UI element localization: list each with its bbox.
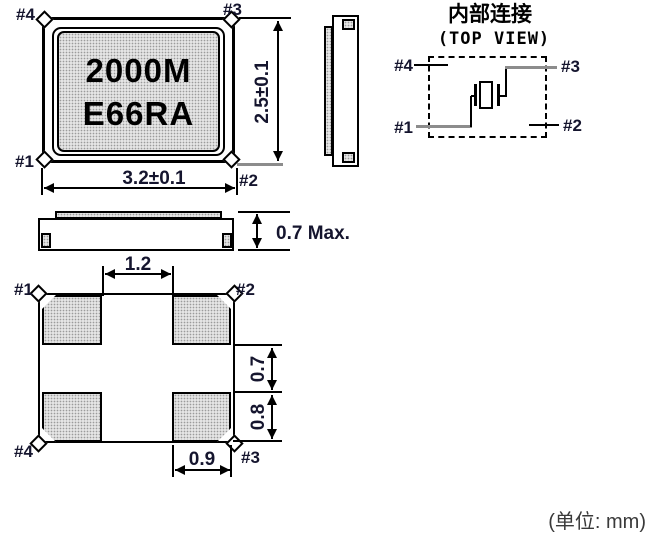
internal-connection-subtitle: (TOP VIEW) bbox=[415, 29, 573, 49]
top-view-pin2-label: #2 bbox=[239, 172, 258, 189]
vertical-gap-dimension-arrow bbox=[271, 348, 273, 390]
pad-1 bbox=[42, 295, 102, 345]
thickness-dimension-label: 0.7 Max. bbox=[276, 224, 350, 243]
pin3-wire bbox=[505, 66, 557, 69]
datasheet-drawing: 2000M E66RA #4 #3 #1 #2 3.2±0.1 2.5±0.1 … bbox=[0, 0, 653, 539]
wire bbox=[505, 68, 507, 97]
extension-line bbox=[236, 168, 238, 195]
top-view-marking-area: 2000M E66RA bbox=[57, 31, 220, 152]
extension-line bbox=[239, 17, 291, 19]
bottom-view-pin3-label: #3 bbox=[241, 449, 260, 466]
bottom-view-pin2-label: #2 bbox=[236, 281, 255, 298]
crystal-plate-left bbox=[474, 84, 477, 106]
side-view-pad-top bbox=[342, 19, 355, 30]
marking-code: E66RA bbox=[83, 92, 194, 135]
extension-line bbox=[172, 266, 174, 296]
extension-line bbox=[233, 440, 282, 442]
schematic-pin2-label: #2 bbox=[563, 117, 593, 134]
extension-line bbox=[238, 249, 290, 251]
front-view-pad-left bbox=[41, 233, 51, 248]
front-view-pad-right bbox=[222, 233, 232, 248]
width-dimension-label: 3.2±0.1 bbox=[99, 169, 209, 188]
height-dimension-arrow bbox=[277, 21, 279, 161]
extension-line bbox=[238, 211, 290, 213]
top-view-pin1-label: #1 bbox=[15, 153, 34, 170]
pad-4 bbox=[42, 392, 102, 442]
vertical-gap-dimension-label: 0.7 bbox=[249, 349, 265, 389]
pin2-stub-wire bbox=[529, 124, 559, 126]
front-view-body bbox=[38, 218, 234, 251]
crystal-symbol bbox=[479, 81, 493, 109]
schematic-pin4-label: #4 bbox=[387, 57, 413, 74]
height-dimension-label: 2.5±0.1 bbox=[253, 37, 271, 147]
side-view-pad-bottom bbox=[342, 152, 355, 163]
side-view-body bbox=[332, 15, 359, 167]
pin4-stub-wire bbox=[414, 64, 448, 66]
marking-frequency: 2000M bbox=[86, 49, 192, 92]
thickness-dimension-arrow bbox=[256, 214, 258, 248]
bottom-view-pin4-label: #4 bbox=[14, 443, 33, 460]
bottom-view-pin1-label: #1 bbox=[14, 281, 33, 298]
pad-height-dimension-label: 0.8 bbox=[249, 397, 265, 437]
schematic-pin3-label: #3 bbox=[561, 58, 591, 75]
extension-line bbox=[233, 391, 282, 393]
pin1-wire bbox=[416, 125, 472, 128]
top-view-pin4-label: #4 bbox=[16, 6, 35, 23]
extension-line bbox=[102, 266, 104, 296]
pad-height-dimension-arrow bbox=[271, 395, 273, 439]
extension-line bbox=[233, 344, 282, 346]
internal-connection-title: 内部连接 bbox=[415, 2, 565, 27]
top-view-pin3-label: #3 bbox=[223, 1, 242, 18]
extension-line bbox=[41, 168, 43, 195]
extension-line-gray bbox=[237, 163, 283, 166]
wire bbox=[470, 96, 472, 127]
pad-2 bbox=[172, 295, 231, 345]
pad-width-dimension-label: 0.9 bbox=[172, 450, 232, 469]
pad-3 bbox=[172, 392, 231, 442]
schematic-pin1-label: #1 bbox=[387, 119, 413, 136]
unit-note: (单位: mm) bbox=[440, 505, 646, 534]
pad-gap-dimension-label: 1.2 bbox=[107, 255, 169, 274]
